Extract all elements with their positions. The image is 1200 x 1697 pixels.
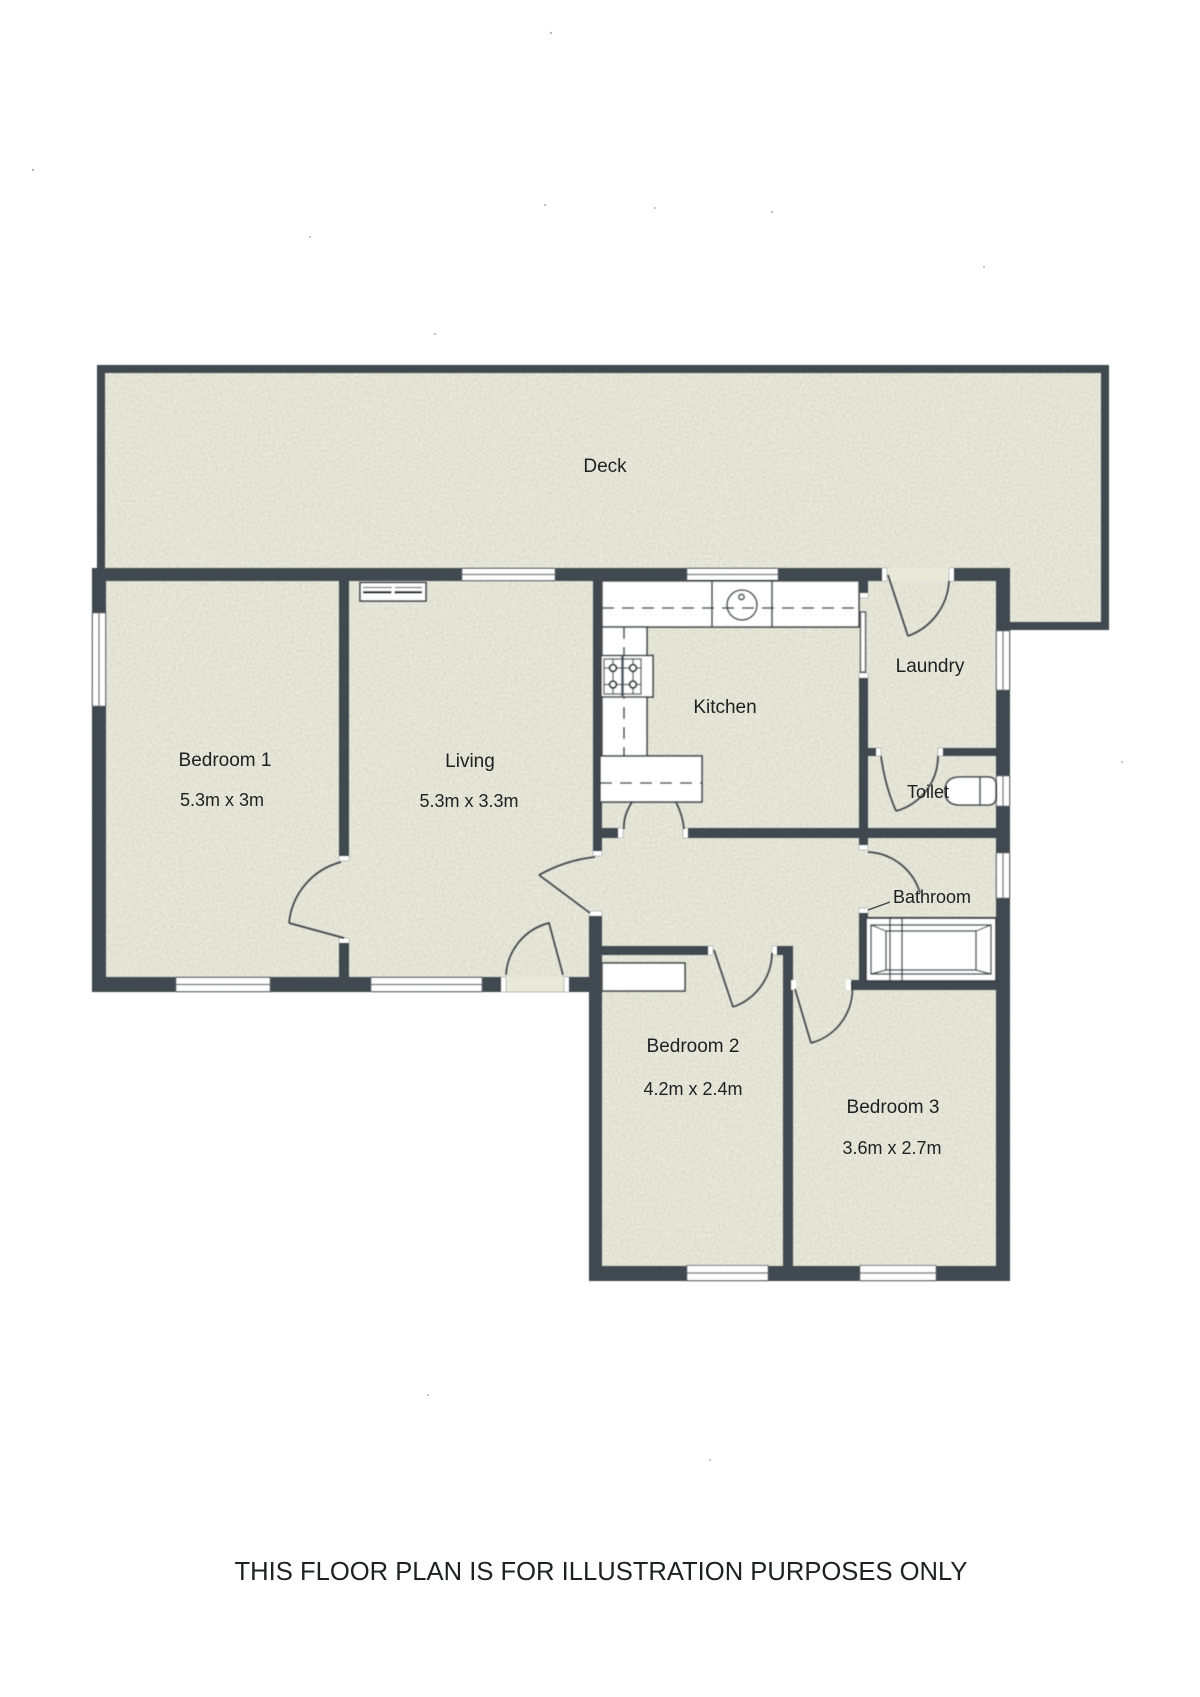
svg-text:Bedroom 3: Bedroom 3 (847, 1097, 940, 1118)
svg-text:Bedroom 1: Bedroom 1 (179, 750, 272, 771)
svg-text:Laundry: Laundry (896, 656, 965, 677)
svg-text:Bathroom: Bathroom (893, 887, 971, 907)
svg-text:THIS FLOOR PLAN IS FOR ILLUSTR: THIS FLOOR PLAN IS FOR ILLUSTRATION PURP… (235, 1558, 968, 1586)
svg-text:Living: Living (445, 751, 495, 772)
svg-text:Deck: Deck (583, 456, 627, 477)
svg-text:5.3m x 3.3m: 5.3m x 3.3m (419, 791, 518, 811)
svg-text:Bedroom 2: Bedroom 2 (647, 1036, 740, 1057)
svg-text:Toilet: Toilet (907, 782, 949, 802)
svg-text:4.2m x 2.4m: 4.2m x 2.4m (643, 1079, 742, 1099)
svg-text:Kitchen: Kitchen (693, 697, 756, 718)
svg-text:5.3m x 3m: 5.3m x 3m (180, 790, 264, 810)
svg-text:3.6m x 2.7m: 3.6m x 2.7m (842, 1138, 941, 1158)
